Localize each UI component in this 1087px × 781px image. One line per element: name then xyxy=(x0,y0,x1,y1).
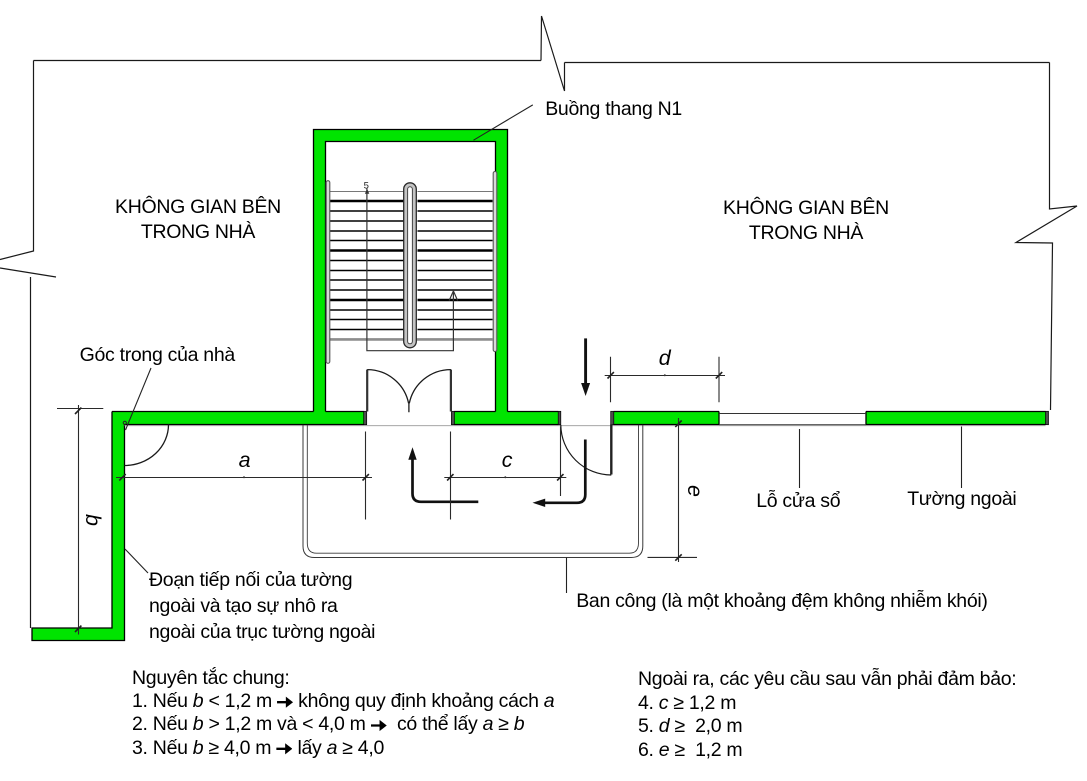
svg-text:5: 5 xyxy=(364,181,369,192)
